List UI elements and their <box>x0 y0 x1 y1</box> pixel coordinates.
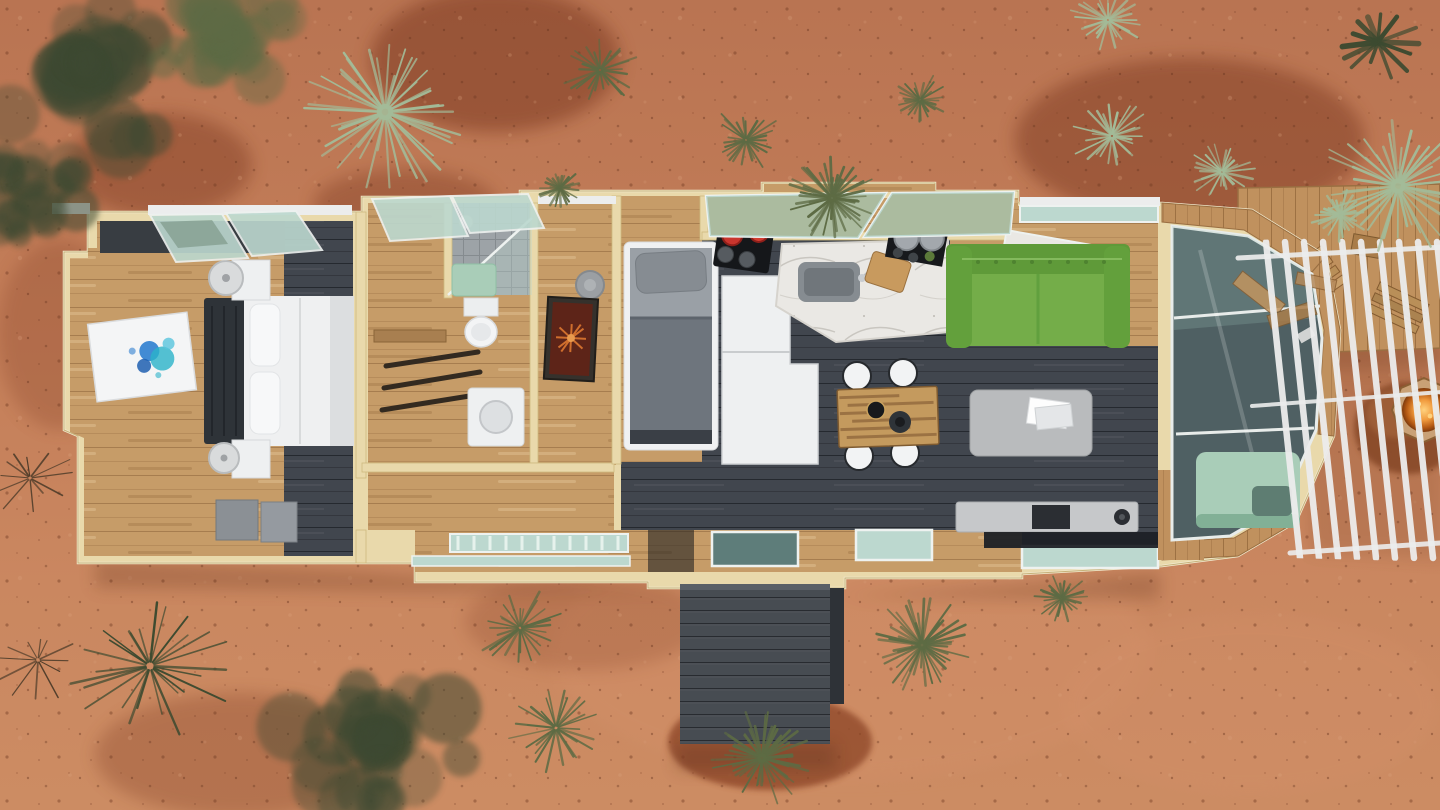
toilet-tank <box>464 298 498 316</box>
dining-chair <box>843 362 871 390</box>
butcher-block-table <box>837 386 939 447</box>
sofa-arm <box>946 246 972 348</box>
bunk-pillow <box>635 250 707 294</box>
south-window-strip <box>1022 546 1158 568</box>
wall-bedroom-wardrobe-lower <box>356 530 366 563</box>
entry-threshold <box>648 530 694 572</box>
floor-art-blue-splash <box>88 312 197 402</box>
wall-nook-bunk <box>612 196 621 464</box>
black-bowl <box>867 401 885 419</box>
glass-hatch <box>712 532 798 566</box>
dining-chair <box>889 359 917 387</box>
house <box>52 183 1340 588</box>
shower-bench-mint <box>452 264 496 296</box>
pillow <box>250 304 280 366</box>
pillow <box>250 372 280 434</box>
wall-bedroom-wardrobe <box>356 212 366 478</box>
daybed-pillow <box>1252 486 1292 516</box>
storage-chest <box>216 500 258 540</box>
sink-basin <box>804 268 854 296</box>
foot-throw-dark <box>630 430 712 444</box>
washer-door <box>480 401 512 433</box>
magazine <box>1035 404 1073 430</box>
deck-side-table <box>1350 234 1381 259</box>
sofa-arm <box>1104 246 1130 348</box>
wall-corridor-north <box>362 463 614 472</box>
turntable-center <box>1119 514 1125 520</box>
storage-chest <box>261 502 297 542</box>
top-step-edge <box>680 584 830 590</box>
window-head-trim <box>1020 197 1160 206</box>
steps-side-face <box>830 588 844 704</box>
bunk-room <box>624 242 718 450</box>
closet-shelf <box>374 330 446 342</box>
glazing-edge <box>412 556 630 566</box>
daybed-edge <box>1196 514 1300 528</box>
desert-floorplan-render <box>0 0 1440 810</box>
lamp-finial <box>221 455 228 462</box>
bed-foot-throw <box>330 296 354 446</box>
lamp-finial <box>222 274 230 282</box>
vase-mouth <box>895 417 905 427</box>
tilted-window-pane <box>372 196 468 241</box>
north-window-strip <box>1020 206 1158 222</box>
entry-steps <box>680 584 830 744</box>
toilet-seat <box>471 323 491 341</box>
single-bed-blanket <box>630 318 712 444</box>
ceiling-light-center <box>584 279 596 291</box>
scene-canvas <box>0 0 1440 810</box>
ember <box>1428 414 1433 419</box>
leaning-artwork <box>544 297 598 382</box>
console-screen-panel <box>1032 505 1070 529</box>
glass-hatch <box>856 530 932 560</box>
corridor-floor <box>368 472 614 530</box>
entry-porch <box>680 584 844 744</box>
black-floor-mat <box>984 532 1160 548</box>
